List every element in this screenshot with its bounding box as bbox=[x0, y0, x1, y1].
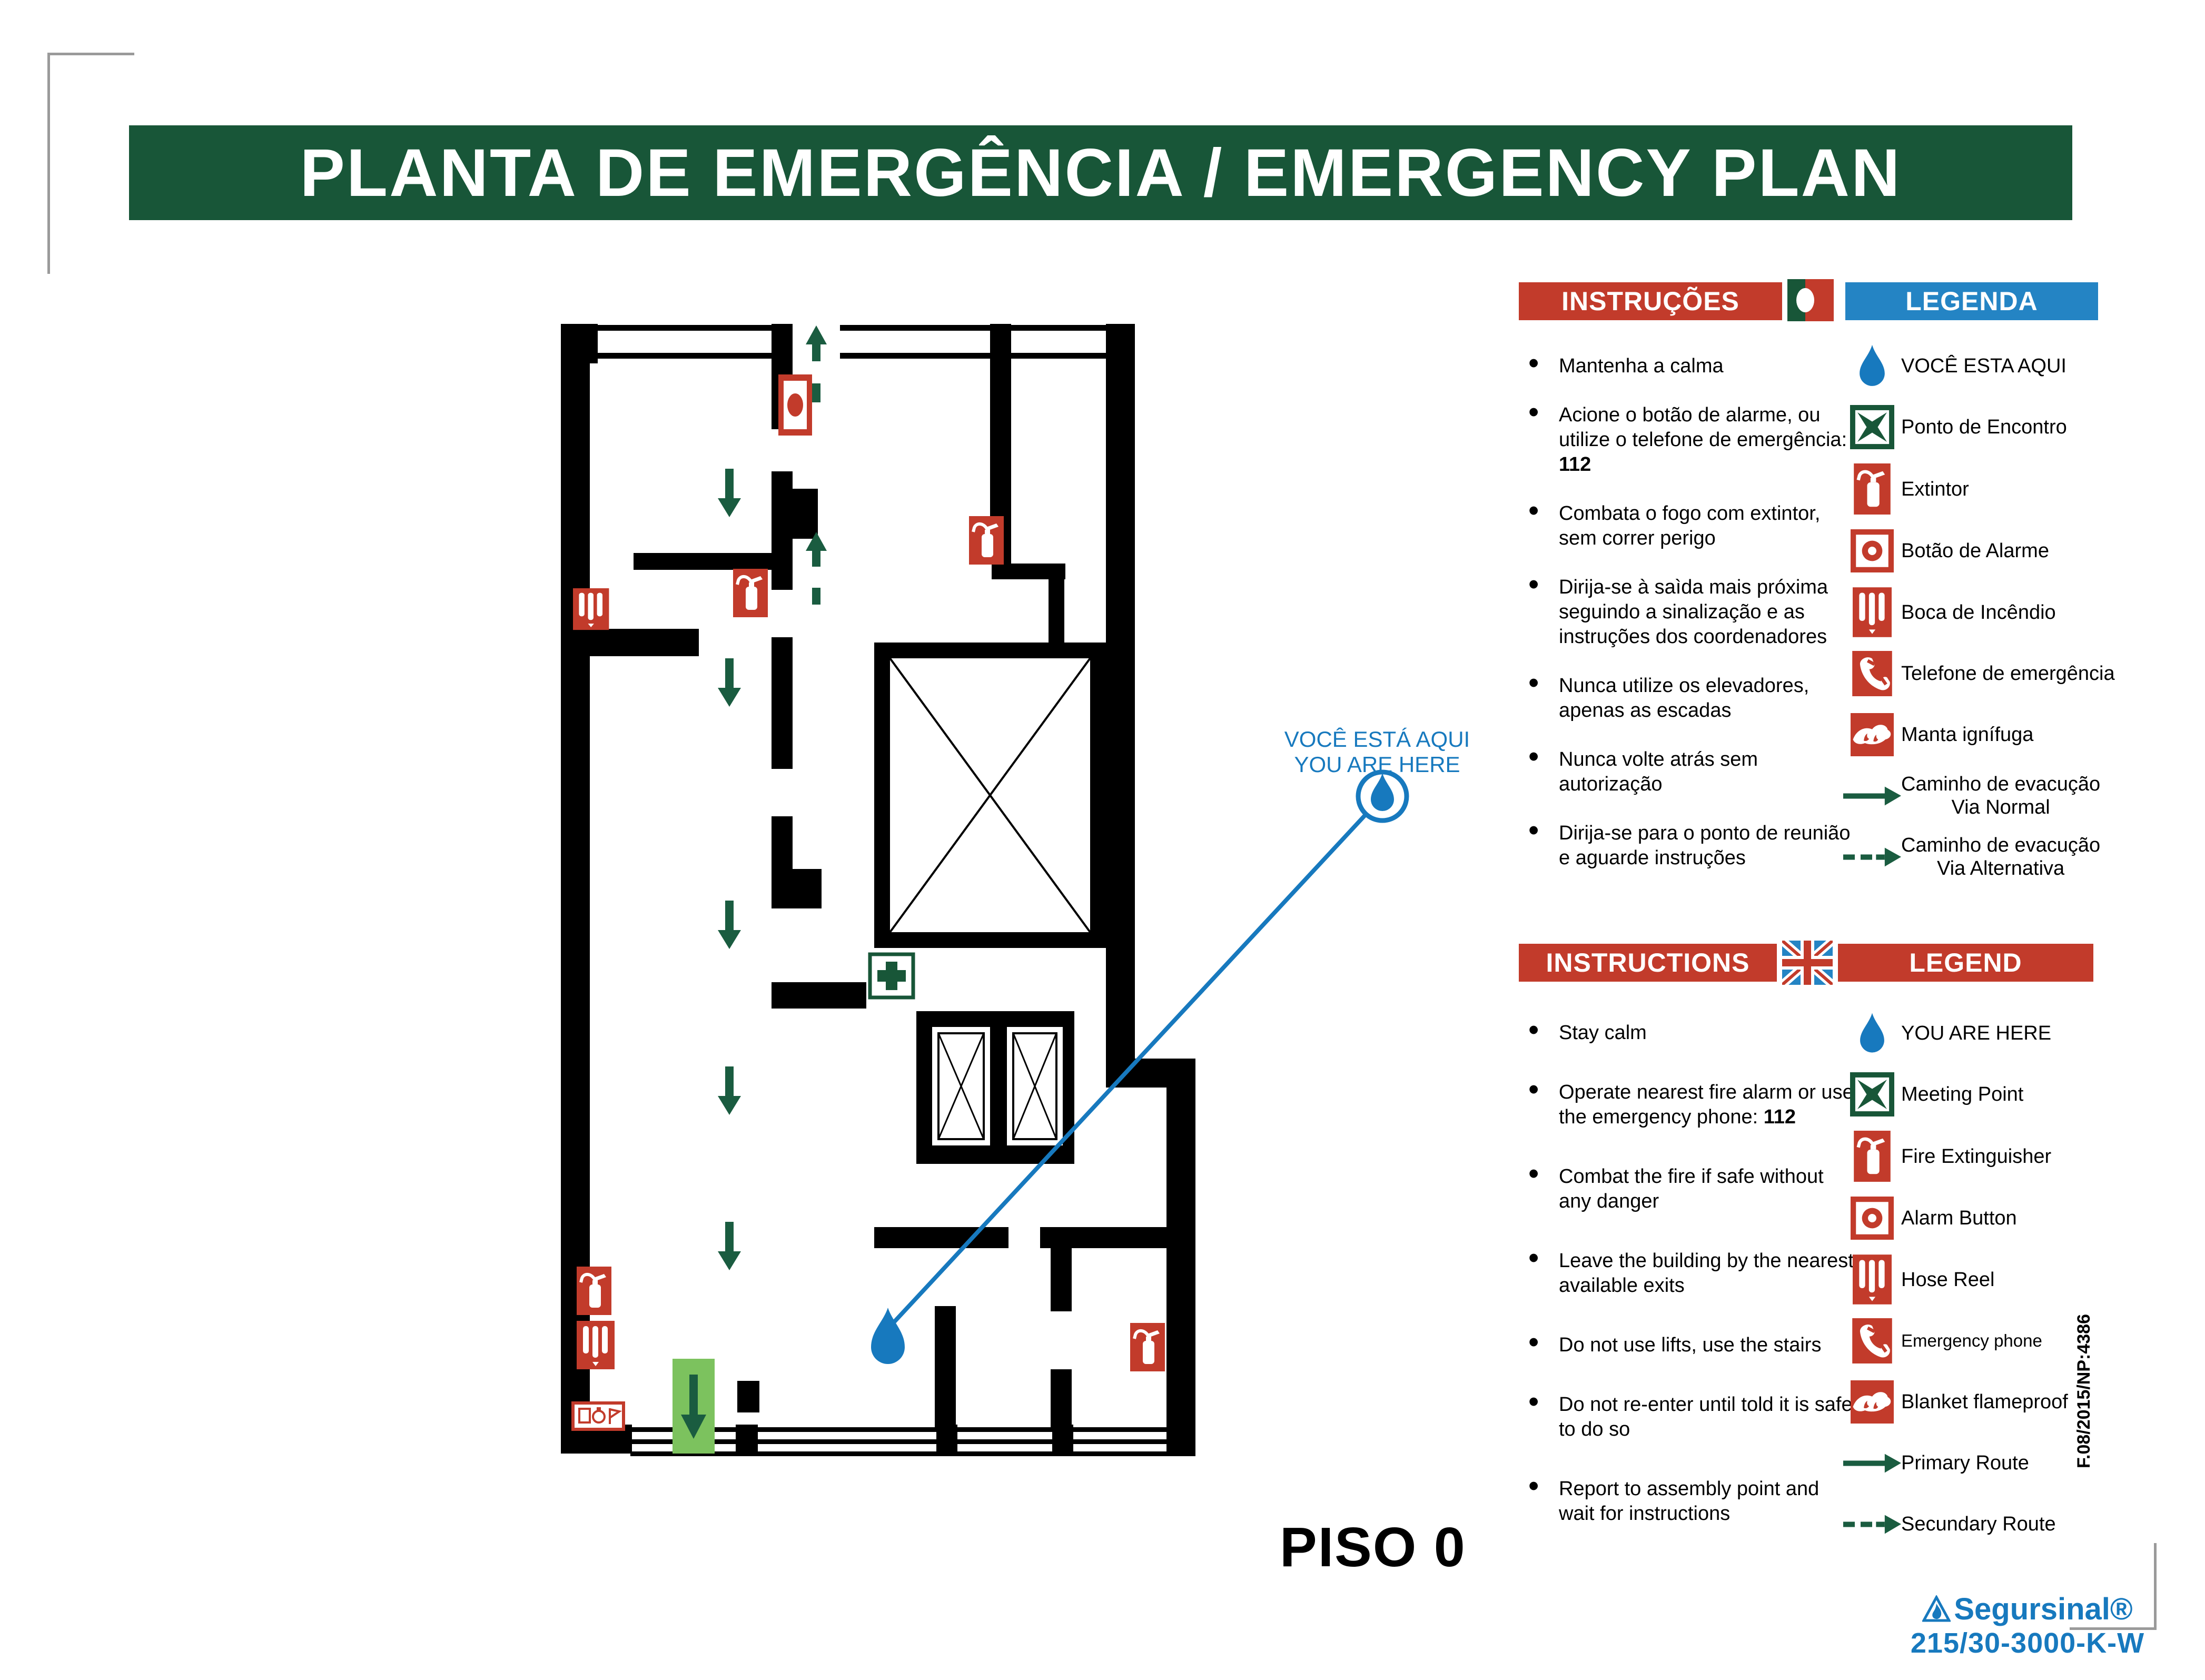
fire-blanket-icon bbox=[1843, 713, 1901, 756]
first-aid-icon bbox=[870, 954, 913, 997]
meeting-point-icon bbox=[1843, 405, 1901, 449]
instruction-item: Nunca volte atrás sem autorização bbox=[1519, 747, 1854, 797]
fire-extinguisher-icon bbox=[969, 516, 1004, 565]
legend-item: Extintor bbox=[1843, 463, 2180, 515]
primary-route-arrow-icon bbox=[1843, 1452, 1901, 1474]
instruction-item: Dirija-se à saìda mais próxima seguindo … bbox=[1519, 575, 1854, 649]
primary-route-arrow-icon bbox=[1843, 785, 1901, 807]
callout-line-pt: VOCÊ ESTÁ AQUI bbox=[1284, 727, 1470, 752]
instruction-item: Report to assembly point and wait for in… bbox=[1519, 1477, 1854, 1526]
pt-legend-list: VOCÊ ESTA AQUI Ponto de Encontro Extinto… bbox=[1843, 341, 2180, 893]
exit-band bbox=[673, 1359, 715, 1454]
portugal-flag-icon bbox=[1787, 279, 1834, 321]
legend-item: Caminho de evacuçãoVia Alternativa bbox=[1843, 832, 2180, 882]
legend-item: Boca de Incêndio bbox=[1843, 587, 2180, 637]
hose-reel-icon bbox=[1843, 1254, 1901, 1305]
legend-item: Caminho de evacuçãoVia Normal bbox=[1843, 771, 2180, 821]
instruction-item: Do not re-enter until told it is safe to… bbox=[1519, 1392, 1854, 1442]
legend-item: Botão de Alarme bbox=[1843, 526, 2180, 576]
fire-extinguisher-icon bbox=[1843, 463, 1901, 515]
fire-extinguisher-icon bbox=[577, 1267, 611, 1315]
elevator-shafts bbox=[916, 1011, 1074, 1164]
you-are-here-droplet-icon bbox=[1843, 343, 1901, 389]
en-instructions-list: Stay calm Operate nearest fire alarm or … bbox=[1519, 1021, 1856, 1561]
legend-item: Alarm Button bbox=[1843, 1193, 2180, 1243]
brand-model: 215/30-3000-K-W bbox=[1891, 1627, 2164, 1659]
en-instructions-header: INSTRUCTIONS bbox=[1519, 944, 1777, 982]
alarm-button-icon bbox=[778, 374, 812, 436]
crop-mark bbox=[47, 53, 134, 55]
fire-blanket-icon bbox=[1843, 1380, 1901, 1424]
stairwell bbox=[874, 643, 1106, 948]
document-code: F.08/2015/NP:4386 bbox=[2074, 1314, 2094, 1468]
brand-block: Segursinal® 215/30-3000-K-W bbox=[1891, 1592, 2164, 1659]
instruction-item: Dirija-se para o ponto de reunião e agua… bbox=[1519, 821, 1854, 871]
callout-line-en: YOU ARE HERE bbox=[1294, 752, 1460, 777]
hose-reel-icon bbox=[577, 1321, 615, 1369]
legend-item: Manta ignífuga bbox=[1843, 710, 2180, 759]
alarm-button-icon bbox=[1843, 1197, 1901, 1240]
pt-legend-header: LEGENDA bbox=[1845, 282, 2098, 320]
crop-mark bbox=[47, 53, 50, 274]
legend-item: Telefone de emergência bbox=[1843, 649, 2180, 698]
hose-reel-icon bbox=[1843, 587, 1901, 637]
legend-item: Primary Route bbox=[1843, 1438, 2180, 1488]
uk-flag-icon bbox=[1782, 941, 1833, 985]
fire-alarm-panel-icon bbox=[573, 1403, 624, 1429]
legend-item: Hose Reel bbox=[1843, 1254, 2180, 1305]
legend-item: YOU ARE HERE bbox=[1843, 1009, 2180, 1058]
instruction-item: Mantenha a calma bbox=[1519, 354, 1854, 379]
route-arrows bbox=[718, 325, 827, 1270]
segursinal-logo-icon bbox=[1922, 1595, 1951, 1624]
fire-extinguisher-icon bbox=[733, 569, 768, 617]
legend-item: Fire Extinguisher bbox=[1843, 1131, 2180, 1182]
legend-item: VOCÊ ESTA AQUI bbox=[1843, 341, 2180, 391]
pt-instructions-header: INSTRUÇÕES bbox=[1519, 282, 1782, 320]
emergency-plan-sign: { "page": { "title": "PLANTA DE EMERGÊNC… bbox=[0, 0, 2205, 1680]
secondary-route-arrow-icon bbox=[1843, 846, 1901, 868]
pt-instructions-list: Mantenha a calma Acione o botão de alarm… bbox=[1519, 354, 1856, 895]
legend-item: Blanket flameproof bbox=[1843, 1377, 2180, 1427]
meeting-point-icon bbox=[1843, 1072, 1901, 1116]
hose-reel-icon bbox=[573, 588, 609, 630]
alarm-button-icon bbox=[1843, 529, 1901, 572]
floor-label: PISO 0 bbox=[1280, 1516, 1466, 1579]
fire-extinguisher-icon bbox=[1130, 1323, 1165, 1371]
you-are-here-droplet-icon bbox=[1843, 1011, 1901, 1055]
instruction-item: Combata o fogo com extintor, sem correr … bbox=[1519, 501, 1854, 551]
legend-item: Secundary Route bbox=[1843, 1499, 2180, 1549]
instruction-item: Acione o botão de alarme, ou utilize o t… bbox=[1519, 403, 1854, 477]
legend-item: Emergency phone bbox=[1843, 1316, 2180, 1366]
instruction-item: Leave the building by the nearest availa… bbox=[1519, 1249, 1854, 1298]
page-title: PLANTA DE EMERGÊNCIA / EMERGENCY PLAN bbox=[129, 125, 2072, 220]
floor-plan: VOCÊ ESTÁ AQUI YOU ARE HERE bbox=[548, 295, 1548, 1522]
instruction-item: Operate nearest fire alarm or use the em… bbox=[1519, 1080, 1854, 1130]
instruction-item: Nunca utilize os elevadores, apenas as e… bbox=[1519, 674, 1854, 723]
instruction-item: Stay calm bbox=[1519, 1021, 1854, 1045]
en-legend-list: YOU ARE HERE Meeting Point Fire Extingui… bbox=[1843, 1009, 2180, 1560]
en-legend-header: LEGEND bbox=[1838, 944, 2093, 982]
secondary-route-arrow-icon bbox=[1843, 1514, 1901, 1535]
brand-name: Segursinal® bbox=[1954, 1592, 2132, 1627]
emergency-phone-icon bbox=[1843, 651, 1901, 696]
instruction-item: Combat the fire if safe without any dang… bbox=[1519, 1164, 1854, 1214]
emergency-phone-icon bbox=[1843, 1318, 1901, 1363]
legend-item: Ponto de Encontro bbox=[1843, 402, 2180, 452]
legend-item: Meeting Point bbox=[1843, 1070, 2180, 1119]
fire-extinguisher-icon bbox=[1843, 1131, 1901, 1182]
instruction-item: Do not use lifts, use the stairs bbox=[1519, 1333, 1854, 1358]
